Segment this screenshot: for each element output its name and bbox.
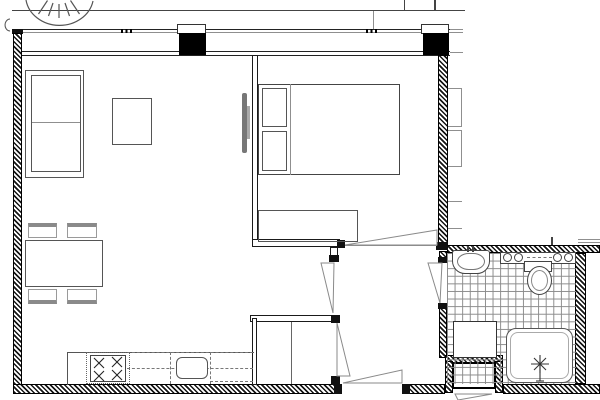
niche-door-leaf xyxy=(455,394,492,400)
floor-plan xyxy=(0,0,600,400)
living-room-door-leaf xyxy=(321,263,334,313)
stove-burner-icons xyxy=(94,357,122,381)
symbol-overlay xyxy=(0,0,600,400)
bathroom-door-leaf xyxy=(428,263,442,303)
shower-drain-icon xyxy=(531,355,549,381)
entry-door-leaf xyxy=(343,370,402,383)
compass-arc-icon xyxy=(26,0,93,25)
facade-hook-mark xyxy=(5,19,10,31)
closet-door-leaf xyxy=(337,323,350,376)
bedroom-door-leaf xyxy=(345,230,437,245)
